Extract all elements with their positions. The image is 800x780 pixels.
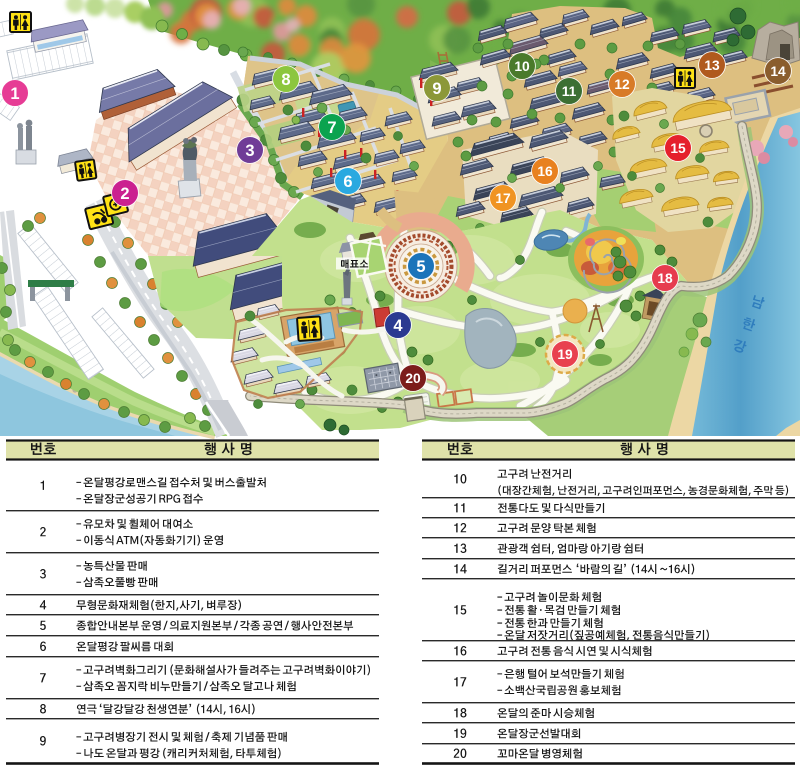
svg-text:5: 5 [416, 258, 425, 276]
svg-text:7: 7 [327, 119, 336, 137]
svg-text:10: 10 [514, 59, 530, 74]
svg-text:12: 12 [614, 77, 630, 92]
svg-text:6: 6 [343, 173, 352, 191]
svg-text:9: 9 [432, 80, 441, 98]
svg-text:19: 19 [557, 347, 573, 362]
svg-text:14: 14 [770, 64, 786, 79]
svg-text:16: 16 [537, 164, 553, 179]
svg-text:13: 13 [704, 58, 720, 73]
svg-text:3: 3 [245, 142, 254, 160]
svg-text:1: 1 [10, 85, 19, 103]
svg-text:11: 11 [562, 84, 577, 99]
svg-text:2: 2 [120, 185, 129, 203]
svg-text:20: 20 [405, 371, 421, 386]
svg-text:17: 17 [495, 191, 511, 206]
svg-text:8: 8 [281, 71, 290, 89]
svg-text:15: 15 [670, 141, 686, 156]
svg-text:4: 4 [393, 317, 403, 335]
svg-text:18: 18 [657, 271, 673, 286]
